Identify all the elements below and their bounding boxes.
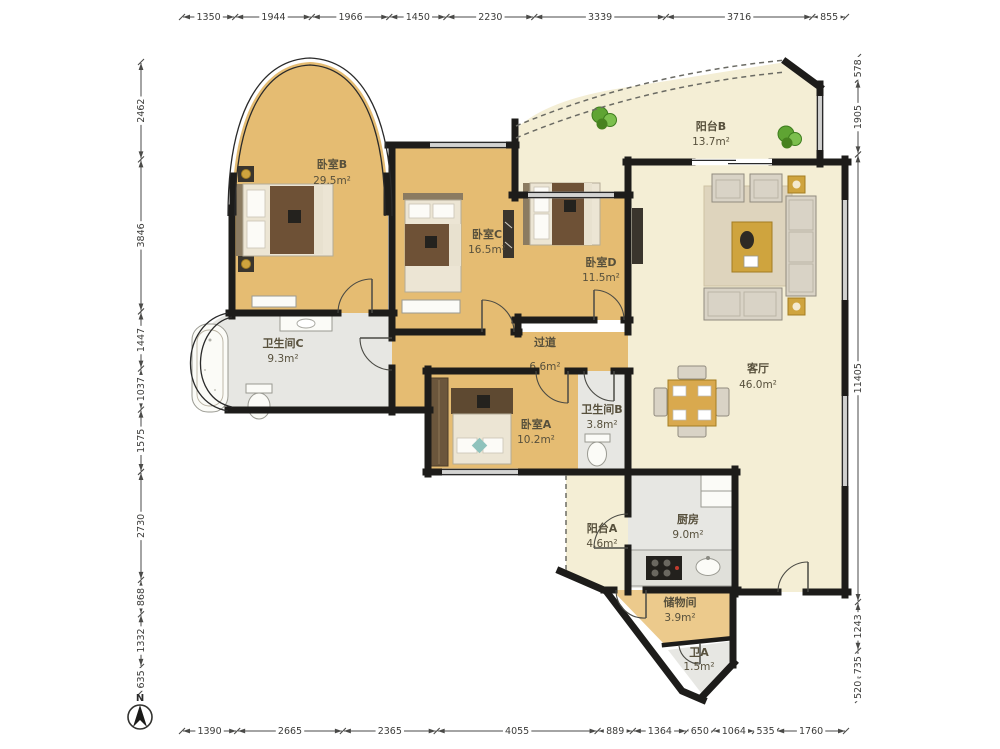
drain	[209, 339, 212, 342]
dim-label: 2665	[278, 726, 302, 737]
room-name-label: 卧室D	[585, 255, 616, 269]
pillow	[409, 204, 430, 218]
dim-label: 1332	[136, 628, 147, 652]
bed-throw	[564, 200, 576, 212]
dim-label: 2462	[136, 99, 147, 123]
pillow	[534, 187, 549, 212]
pillow	[247, 221, 265, 248]
dim-label: 2230	[478, 12, 502, 23]
room-name-label: 阳台A	[587, 521, 618, 535]
dim-label: 1037	[136, 377, 147, 401]
room-area-label: 13.7m²	[692, 136, 730, 148]
pillow	[247, 190, 265, 217]
dim-label: 889	[606, 726, 624, 737]
window-bedrooma-south	[442, 469, 518, 475]
floor-plan-page: 6.6m²	[0, 0, 1000, 749]
dim-label: 1905	[853, 105, 864, 129]
toilet-icon	[246, 384, 272, 419]
dim-label: 868	[136, 588, 147, 606]
room-area-label: 9.0m²	[672, 529, 703, 541]
dim-label: 1760	[799, 726, 823, 737]
side-table-decor	[793, 303, 801, 311]
kitchen-sink-icon	[696, 559, 720, 576]
room-name-label: 卧室C	[472, 227, 502, 241]
dim-label: 1064	[722, 726, 746, 737]
dimension-strip-top: 1350194419661450223033393716855	[179, 12, 849, 23]
floors-layer	[197, 62, 845, 694]
window-bedroomd-north	[528, 192, 614, 198]
dim-label: 2365	[378, 726, 402, 737]
sofa-set	[704, 174, 816, 320]
dim-label: 1350	[197, 12, 221, 23]
room-area-label: 3.8m²	[586, 419, 617, 431]
room-name-label: 阳台B	[696, 119, 726, 133]
room-name-label: 卫生间C	[262, 336, 303, 350]
dim-label: 855	[820, 12, 838, 23]
place-setting	[698, 410, 711, 420]
place-setting	[698, 386, 711, 396]
bed-stripe	[449, 224, 461, 266]
bed-throw	[425, 236, 437, 248]
pillow	[534, 214, 549, 239]
table-decor	[740, 231, 754, 249]
bed-headboard	[403, 193, 463, 200]
dimension-strip-bottom: 1390266523654055889136465010645351760	[179, 726, 849, 737]
room-area-label: 11.5m²	[582, 272, 620, 284]
place-setting	[673, 386, 686, 396]
window-balconyb-east	[817, 96, 823, 150]
dim-label: 578	[853, 59, 864, 77]
sink-icon	[280, 316, 332, 331]
dim-label: 3339	[588, 12, 612, 23]
leaf	[597, 119, 608, 130]
basin	[297, 319, 315, 328]
room-name-label: 过道	[534, 335, 556, 349]
dresser	[402, 300, 460, 313]
window-living-east-upper	[842, 200, 848, 300]
dim-label: 1944	[261, 12, 285, 23]
dim-label: 1243	[853, 614, 864, 638]
lamp-icon	[242, 170, 251, 179]
toilet-tank	[585, 434, 610, 442]
chair-icon	[678, 366, 706, 379]
dimension-strip-right: 5781905114051243735520	[853, 54, 864, 703]
sofa-icon	[786, 196, 816, 296]
north-compass: N	[128, 693, 152, 729]
dim-label: 735	[853, 656, 864, 674]
side-table-decor	[793, 181, 801, 189]
window-living-east-lower	[842, 396, 848, 486]
dim-label: 1364	[648, 726, 672, 737]
room-name-label: 卧室A	[521, 417, 552, 431]
cabinet-icon	[632, 208, 643, 264]
room-area-label: 1.5m²	[683, 661, 714, 673]
bed-stripe	[314, 186, 323, 254]
dim-label: 2730	[136, 514, 147, 538]
sofa-icon	[704, 288, 782, 320]
dim-label: 1447	[136, 328, 147, 352]
room-area-label: 46.0m²	[739, 379, 777, 391]
bed-headboard	[236, 184, 243, 256]
dimension-strip-left: 2462384614471037157527308681332635	[136, 59, 147, 695]
burner	[664, 570, 671, 577]
bench	[252, 296, 296, 307]
dim-label: 1390	[197, 726, 221, 737]
faucet	[706, 556, 710, 560]
dim-label: 1575	[136, 429, 147, 453]
sliding-door-balconyb	[692, 159, 772, 165]
window-bedroomc-north	[430, 142, 506, 148]
room-name-label: 储物间	[664, 595, 697, 609]
burner	[652, 560, 659, 567]
leaf	[782, 138, 793, 149]
speckle	[204, 369, 206, 371]
north-label: N	[136, 693, 144, 704]
tray	[744, 256, 758, 267]
dim-label: 11405	[853, 363, 864, 393]
dim-label: 3716	[727, 12, 751, 23]
place-setting	[673, 410, 686, 420]
dim-label: 520	[853, 681, 864, 699]
toilet-tank	[246, 384, 272, 393]
dim-label: 650	[691, 726, 709, 737]
chair-icon	[716, 388, 729, 416]
dim-label: 1966	[338, 12, 362, 23]
knob	[675, 566, 679, 570]
room-area-label: 3.9m²	[664, 612, 695, 624]
dim-label: 4055	[505, 726, 529, 737]
toilet-bowl	[588, 442, 607, 466]
dim-label: 535	[756, 726, 774, 737]
room-area-label: 16.5m²	[468, 244, 506, 256]
floor-plan-canvas: 6.6m²	[0, 0, 1000, 749]
room-area-label: 9.3m²	[267, 353, 298, 365]
room-name-label: 卫A	[689, 646, 709, 659]
speckle	[214, 389, 216, 391]
pillow	[433, 204, 454, 218]
room-name-label: 厨房	[677, 512, 699, 526]
dim-label: 3846	[136, 223, 147, 247]
dim-label: 1450	[406, 12, 430, 23]
room-area-label: 29.5m²	[313, 175, 351, 187]
chair-icon	[654, 388, 667, 416]
room-name-label: 客厅	[746, 361, 769, 375]
room-label-hallway: 过道	[534, 335, 556, 349]
burner	[652, 570, 659, 577]
room-name-label: 卫生间B	[581, 402, 622, 416]
bed-throw	[288, 210, 301, 223]
room-area-label: 10.2m²	[517, 434, 555, 446]
bed-throw	[477, 395, 490, 408]
burner	[664, 560, 671, 567]
toilet-bowl	[248, 393, 270, 419]
room-name-label: 卧室B	[317, 157, 347, 171]
room-area-label: 4.6m²	[586, 538, 617, 550]
bed-icon	[431, 378, 513, 466]
dim-label: 635	[136, 670, 147, 688]
bathtub-icon	[192, 324, 228, 412]
lamp-icon	[242, 260, 251, 269]
